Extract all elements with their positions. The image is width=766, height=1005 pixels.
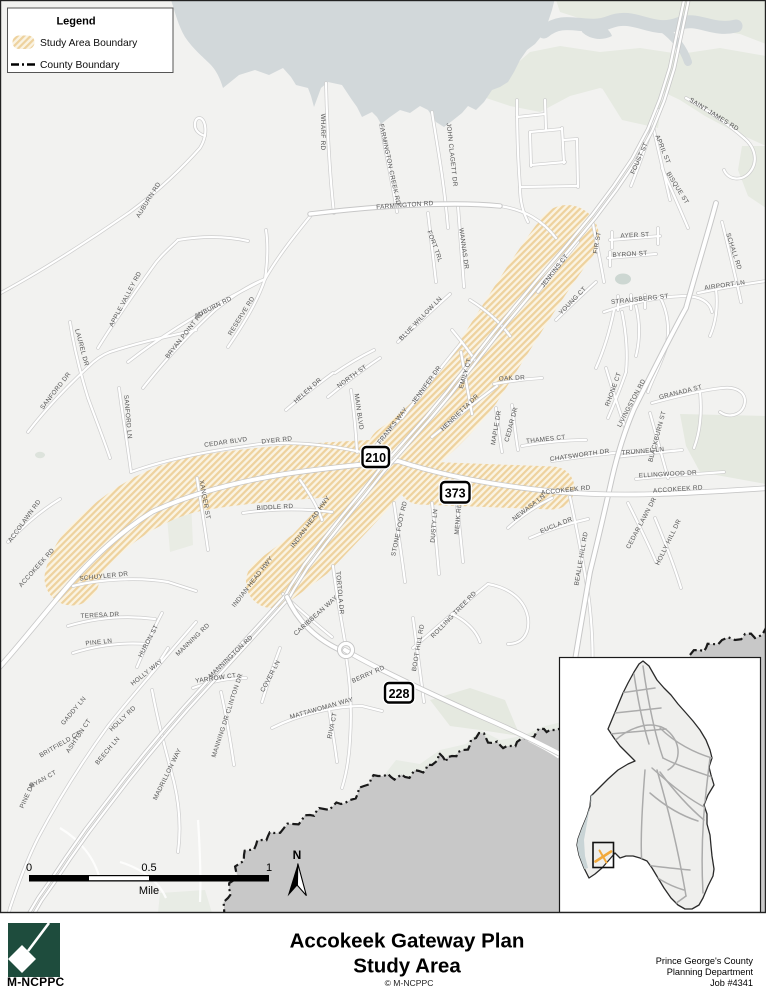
svg-text:OAK DR: OAK DR [499, 374, 526, 382]
svg-text:Job #4341: Job #4341 [710, 978, 753, 988]
svg-text:© M-NCPPC: © M-NCPPC [385, 978, 434, 988]
svg-text:Study Area: Study Area [353, 955, 461, 978]
svg-text:WHARF RD: WHARF RD [319, 114, 326, 151]
svg-text:0.5: 0.5 [141, 862, 156, 874]
svg-text:Planning Department: Planning Department [667, 967, 754, 977]
svg-text:N: N [293, 848, 302, 862]
svg-text:Mile: Mile [139, 885, 159, 897]
svg-text:Prince George's County: Prince George's County [656, 956, 754, 966]
svg-text:373: 373 [445, 487, 466, 501]
svg-text:Study Area Boundary: Study Area Boundary [40, 38, 138, 49]
svg-text:1: 1 [266, 862, 272, 874]
svg-text:0: 0 [26, 862, 32, 874]
svg-text:228: 228 [389, 687, 410, 701]
svg-text:210: 210 [365, 451, 386, 465]
svg-text:County Boundary: County Boundary [40, 60, 120, 71]
svg-text:Accokeek Gateway Plan: Accokeek Gateway Plan [290, 930, 525, 953]
svg-text:Legend: Legend [56, 16, 95, 28]
svg-text:M-NCPPC: M-NCPPC [7, 975, 65, 989]
